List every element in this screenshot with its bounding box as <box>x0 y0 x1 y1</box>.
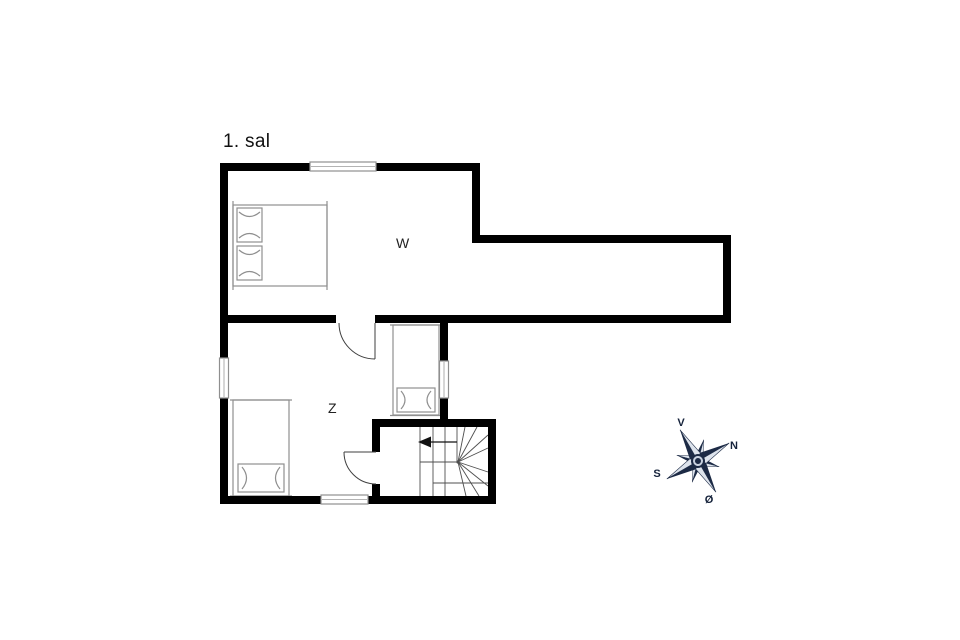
compass-star-icon <box>648 411 748 511</box>
door-w-to-z <box>339 323 375 359</box>
room-label-z: Z <box>328 400 337 416</box>
wall-right-upper-exterior <box>472 163 480 243</box>
staircase <box>418 427 488 496</box>
wall-mid-left-segment <box>220 315 336 323</box>
door-z-to-stairs <box>344 452 376 484</box>
compass-label-north: N <box>730 440 738 452</box>
wall-stair-left-upper <box>372 419 380 452</box>
stair-direction-arrow <box>418 437 457 448</box>
compass-rose: V N S Ø <box>640 405 760 515</box>
window-alcove-east <box>440 361 449 398</box>
floor-title: 1. sal <box>223 131 270 153</box>
room-label-w: W <box>396 235 409 251</box>
wall-left-exterior <box>220 163 228 504</box>
window-bottom <box>321 495 368 504</box>
window-left <box>220 358 229 398</box>
double-bed <box>233 201 327 290</box>
single-bed-left <box>230 400 292 496</box>
floor-plan-page: { "title": "1. sal", "rooms": [ {"id": "… <box>0 0 960 640</box>
wall-corridor-right <box>723 235 731 323</box>
compass-label-east: Ø <box>705 494 714 506</box>
wall-mid-right-segment <box>375 315 731 323</box>
floor-plan-drawing <box>0 0 960 640</box>
wall-stair-right <box>488 419 496 504</box>
window-top <box>310 162 376 171</box>
single-bed-middle <box>390 325 442 416</box>
compass-label-south: S <box>653 468 660 480</box>
wall-corridor-top <box>472 235 731 243</box>
compass-label-west: V <box>677 417 684 429</box>
wall-stair-top <box>372 419 496 427</box>
